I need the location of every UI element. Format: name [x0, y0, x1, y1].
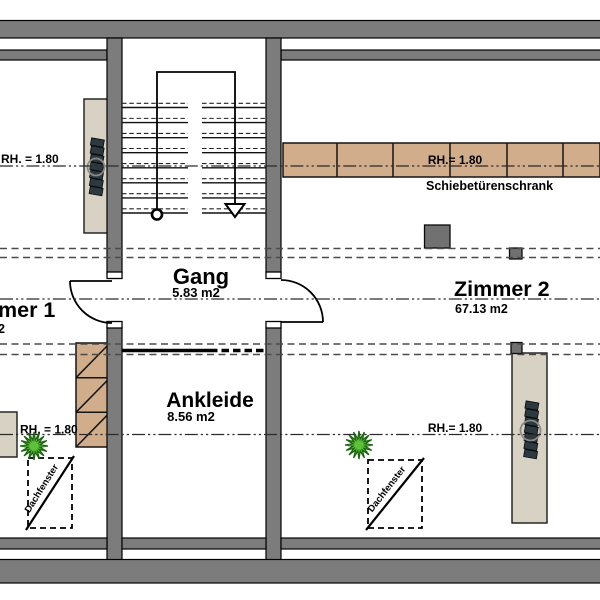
bottom-inner-wall-left [0, 538, 107, 549]
rh-annotation-top-right: RH.= 1.80 [428, 153, 483, 167]
rh-annotation-bottom-right: RH.= 1.80 [428, 421, 483, 435]
bottom-inner-wall-middle [122, 538, 266, 549]
plant-icon [345, 431, 373, 459]
bottom-inner-wall-right [281, 538, 600, 549]
shelf-cabinet [76, 343, 110, 447]
rh-annotation-bottom-left: RH. = 1.80 [20, 423, 78, 437]
room-area-ankleide: 8.56 m2 [167, 409, 215, 424]
top-inner-wall-right [281, 50, 600, 60]
room-area-zimmer1-fragment: 2 [0, 322, 5, 336]
door-jamb [266, 272, 281, 279]
corridor-left-wall-lower [107, 327, 122, 560]
door-jamb [266, 322, 281, 329]
floor-plan: Gang 5.83 m2 Ankleide 8.56 m2 Zimmer 2 6… [0, 0, 600, 600]
room-area-zimmer2: 67.13 m2 [455, 302, 508, 316]
room-label-zimmer1-fragment: mer 1 [0, 298, 55, 322]
corridor-right-wall-upper [266, 38, 281, 273]
walkline-start-icon [152, 210, 162, 220]
floor-plan-canvas: Gang 5.83 m2 Ankleide 8.56 m2 Zimmer 2 6… [0, 0, 600, 600]
room-area-gang: 5.83 m2 [172, 285, 220, 300]
wardrobe-label: Schiebetürenschrank [426, 179, 553, 193]
corridor-right-wall-lower [266, 327, 281, 560]
corridor-left-wall-upper [107, 38, 122, 273]
top-inner-wall-left [0, 50, 107, 60]
chimney-block [425, 225, 451, 248]
top-outer-wall [0, 21, 600, 39]
bottom-outer-wall [0, 560, 600, 584]
rh-annotation-top-left: RH. = 1.80 [1, 152, 59, 166]
door-jamb [107, 272, 122, 279]
room-label-zimmer2: Zimmer 2 [454, 277, 550, 301]
